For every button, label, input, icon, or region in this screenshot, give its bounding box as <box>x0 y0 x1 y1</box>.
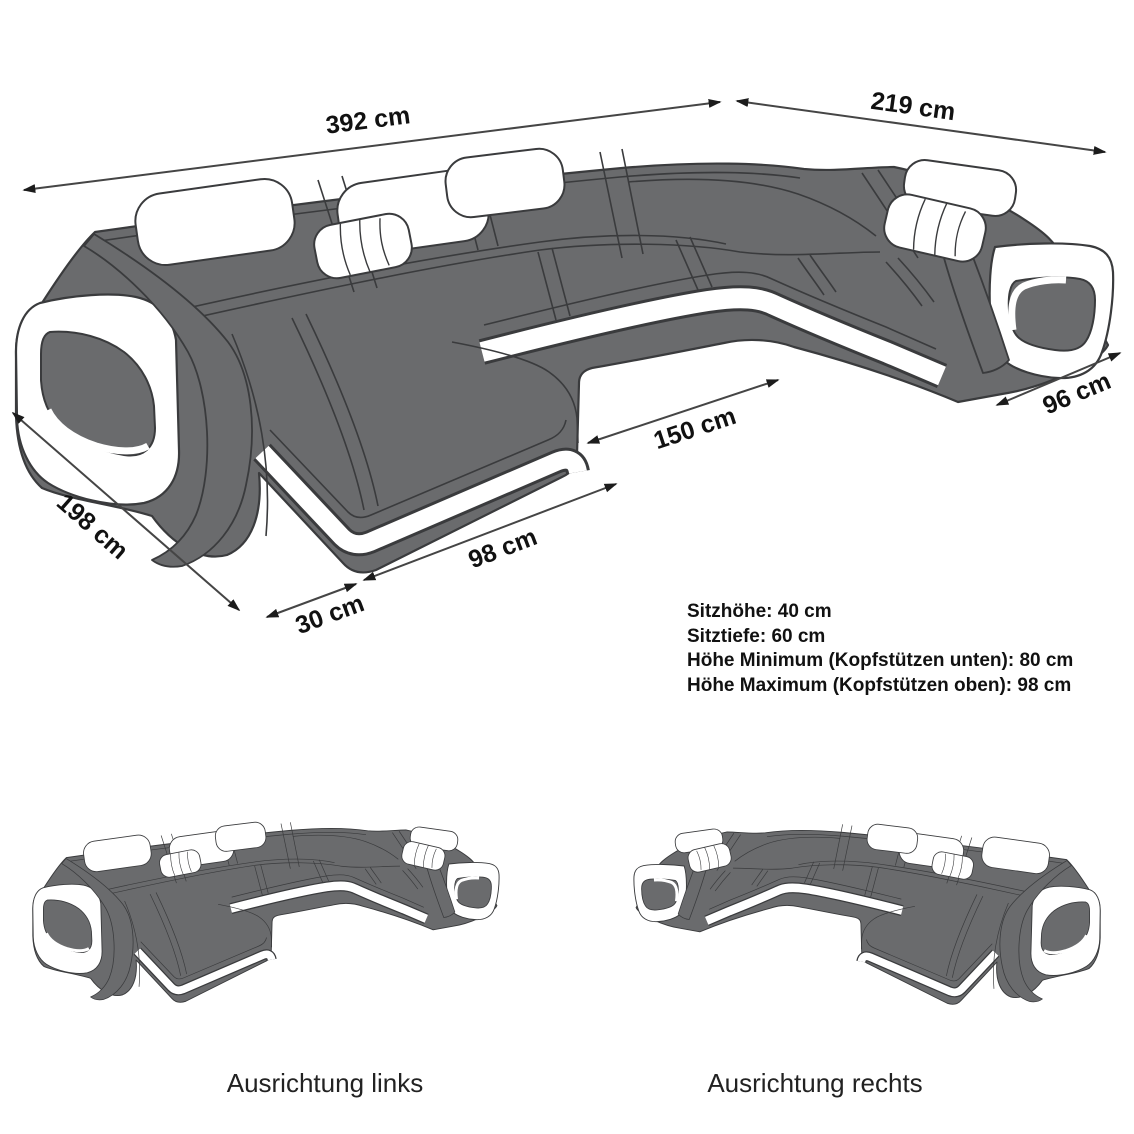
sofa-dimension-diagram: 392 cm 219 cm 150 cm 96 cm 198 cm 98 cm … <box>0 0 1134 1134</box>
spec-height-max: Höhe Maximum (Kopfstützen oben): 98 cm <box>687 674 1073 699</box>
sofa-variant-right <box>634 823 1100 1004</box>
spec-seat-height: Sitzhöhe: 40 cm <box>687 600 1073 625</box>
variant-label-left: Ausrichtung links <box>227 1068 424 1099</box>
sofa-illustrations <box>0 0 1134 1134</box>
sofa-main <box>16 146 1113 572</box>
spec-list: Sitzhöhe: 40 cm Sitztiefe: 60 cm Höhe Mi… <box>687 600 1073 698</box>
variant-label-right: Ausrichtung rechts <box>707 1068 922 1099</box>
sofa-variant-left <box>33 821 499 1002</box>
spec-seat-depth: Sitztiefe: 60 cm <box>687 625 1073 650</box>
spec-height-min: Höhe Minimum (Kopfstützen unten): 80 cm <box>687 649 1073 674</box>
